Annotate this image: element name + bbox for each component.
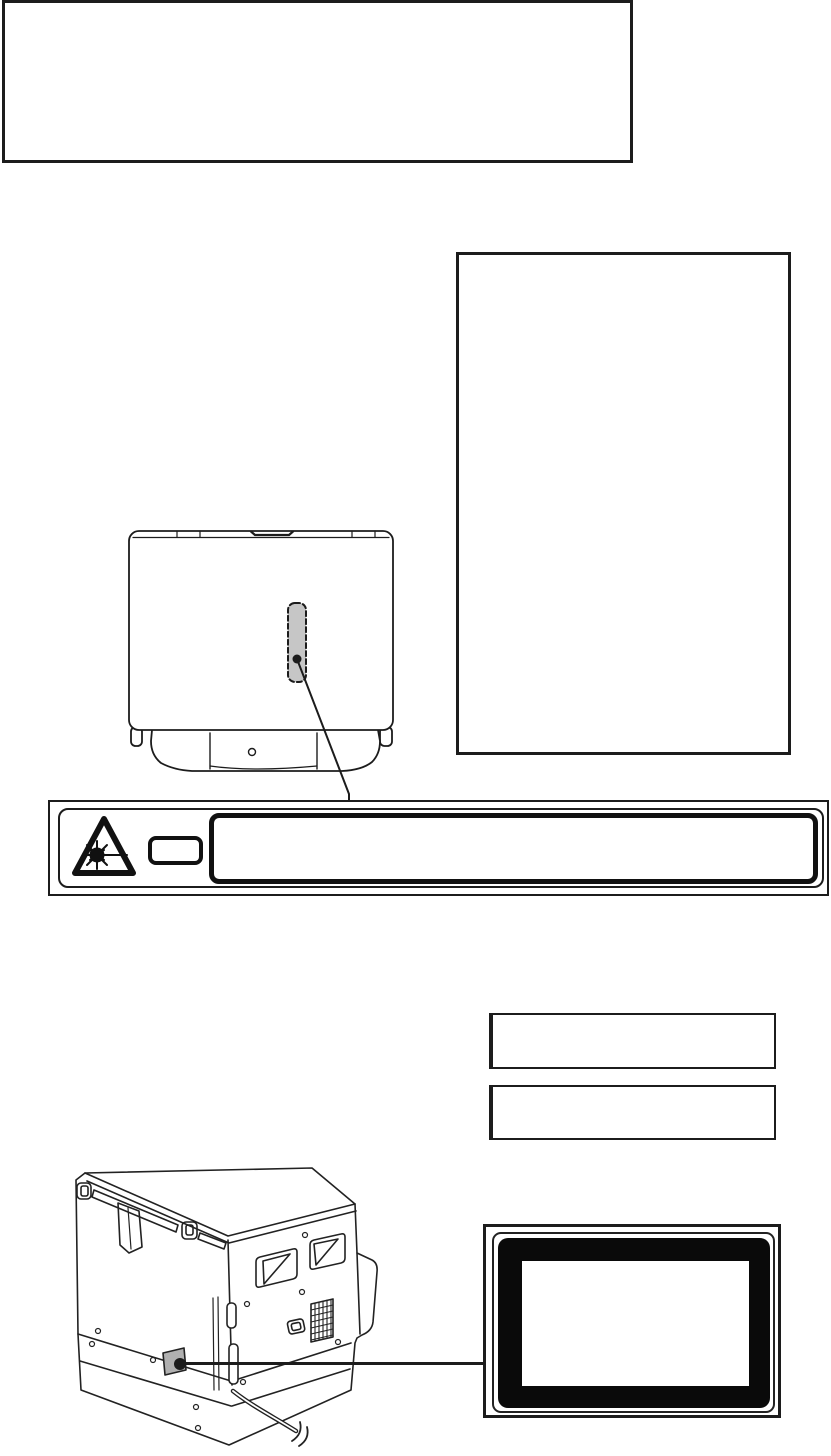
side-text-box <box>456 252 791 755</box>
top-text-box <box>2 0 633 163</box>
device-top-view-figure <box>110 505 410 805</box>
rating-label-outer <box>483 1224 781 1418</box>
laser-label-location <box>288 603 306 682</box>
base-screw <box>249 749 256 756</box>
note-box-1 <box>489 1013 776 1069</box>
laser-hazard-icon <box>70 814 138 880</box>
device-body <box>129 531 393 730</box>
device-base <box>151 730 380 771</box>
note-box-2 <box>489 1085 776 1140</box>
warning-text-box <box>209 813 818 884</box>
warning-strip-outer <box>48 800 829 896</box>
cord-break-mark <box>292 1422 308 1446</box>
rating-callout-line <box>180 1362 483 1365</box>
rating-label-text-area <box>522 1261 749 1386</box>
copier-rear-view-figure <box>55 1145 400 1456</box>
manual-page <box>0 0 831 1456</box>
class-code-box <box>148 836 203 865</box>
